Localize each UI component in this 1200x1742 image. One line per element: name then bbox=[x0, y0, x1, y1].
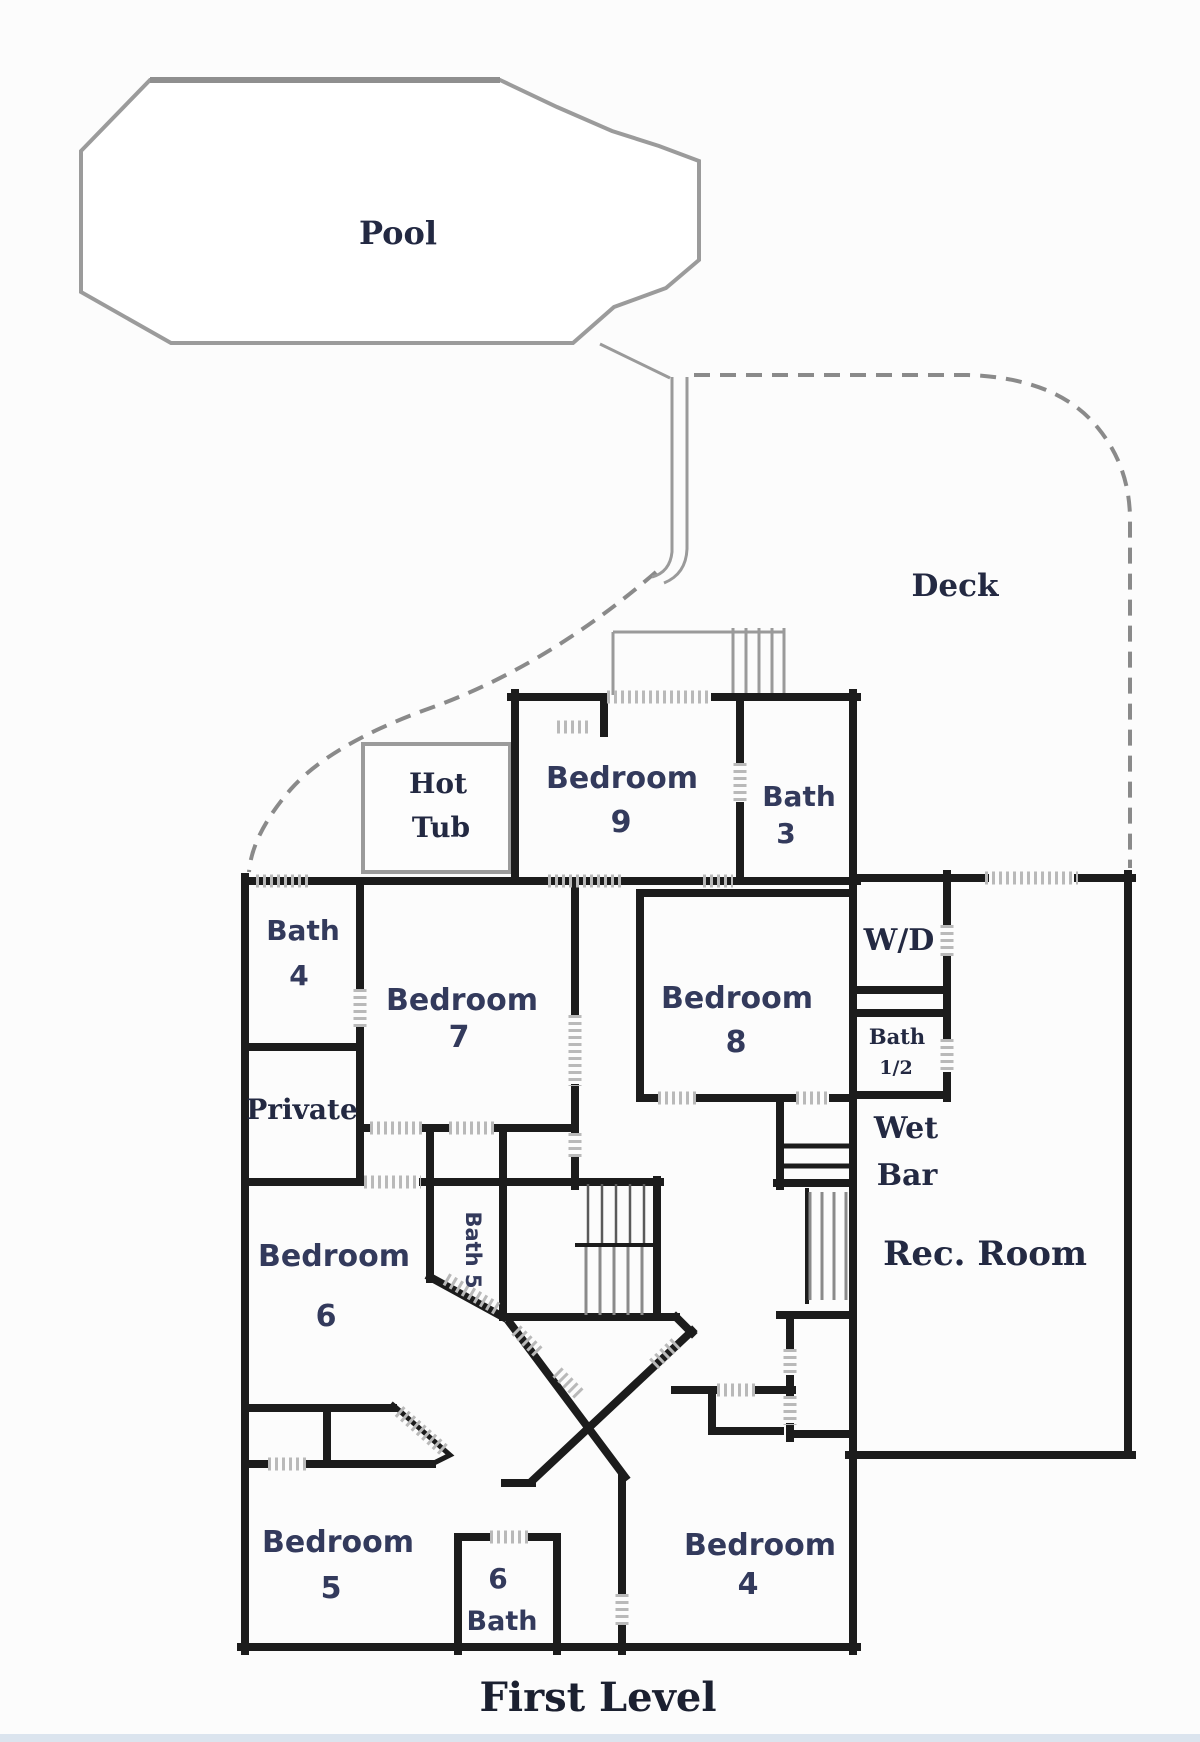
private-label: Private bbox=[246, 1093, 358, 1126]
pool-deck-railing bbox=[652, 377, 687, 583]
floor-plan-drawing: Pool Deck Hot Tub Bedr bbox=[0, 0, 1200, 1742]
bedroom5-label: Bedroom bbox=[262, 1525, 414, 1560]
main-stair-lower-treads bbox=[586, 1247, 642, 1315]
bedroom4-number: 4 bbox=[738, 1567, 759, 1602]
pool: Pool bbox=[81, 80, 699, 378]
bath4-number: 4 bbox=[289, 959, 308, 992]
angled-door-wall bbox=[393, 1405, 450, 1464]
deck-landing-steps bbox=[613, 628, 784, 698]
deck-dashed-right bbox=[694, 375, 1130, 868]
washer-dryer-label: W/D bbox=[863, 923, 935, 958]
hot-tub: Hot Tub bbox=[363, 744, 510, 872]
bedroom6-number: 6 bbox=[316, 1299, 337, 1334]
bedroom6-label: Bedroom bbox=[258, 1239, 410, 1274]
page-title: First Level bbox=[479, 1674, 716, 1721]
scan-edge-strip bbox=[0, 1734, 1200, 1742]
hot-tub-label-line1: Hot bbox=[409, 767, 467, 800]
main-staircase bbox=[586, 1184, 644, 1315]
railing-line-right bbox=[664, 377, 687, 583]
rec-room-label: Rec. Room bbox=[883, 1234, 1087, 1274]
bedroom9-label: Bedroom bbox=[546, 761, 698, 796]
bedroom8-number: 8 bbox=[726, 1025, 747, 1060]
half-bath-label-line1: Bath bbox=[869, 1024, 925, 1049]
bath3-label: Bath bbox=[762, 780, 836, 813]
hot-tub-label-line2: Tub bbox=[412, 811, 470, 844]
pool-label: Pool bbox=[359, 214, 437, 252]
bedroom9-number: 9 bbox=[611, 805, 632, 840]
half-bath-label-line2: 1/2 bbox=[879, 1057, 912, 1079]
deck-step-lines bbox=[733, 628, 784, 698]
bath6-number: 6 bbox=[488, 1562, 507, 1595]
pool-deck-connector bbox=[600, 344, 670, 378]
bedroom7-label: Bedroom bbox=[386, 983, 538, 1018]
lower-level-staircase bbox=[810, 1192, 846, 1300]
lower-stair-treads bbox=[810, 1192, 846, 1300]
bath3-number: 3 bbox=[776, 817, 795, 850]
wet-bar-counter bbox=[780, 1146, 853, 1166]
main-stair-upper-treads bbox=[588, 1184, 644, 1243]
bath6-label: Bath bbox=[467, 1606, 538, 1637]
bedroom4-label: Bedroom bbox=[684, 1528, 836, 1563]
bath5-label: Bath 5 bbox=[461, 1211, 485, 1288]
bath4-label: Bath bbox=[266, 914, 340, 947]
deck-label: Deck bbox=[912, 568, 1000, 604]
hot-tub-outline bbox=[363, 744, 510, 872]
pool-outline bbox=[81, 80, 699, 343]
bedroom7-number: 7 bbox=[449, 1020, 470, 1055]
floor-plan-page: Pool Deck Hot Tub Bedr bbox=[0, 0, 1200, 1742]
bedroom5-number: 5 bbox=[321, 1571, 342, 1606]
wet-bar-label-line2: Bar bbox=[877, 1158, 939, 1193]
railing-line-left bbox=[652, 377, 672, 577]
bedroom8-label: Bedroom bbox=[661, 981, 813, 1016]
wet-bar-label-line1: Wet bbox=[873, 1111, 938, 1146]
